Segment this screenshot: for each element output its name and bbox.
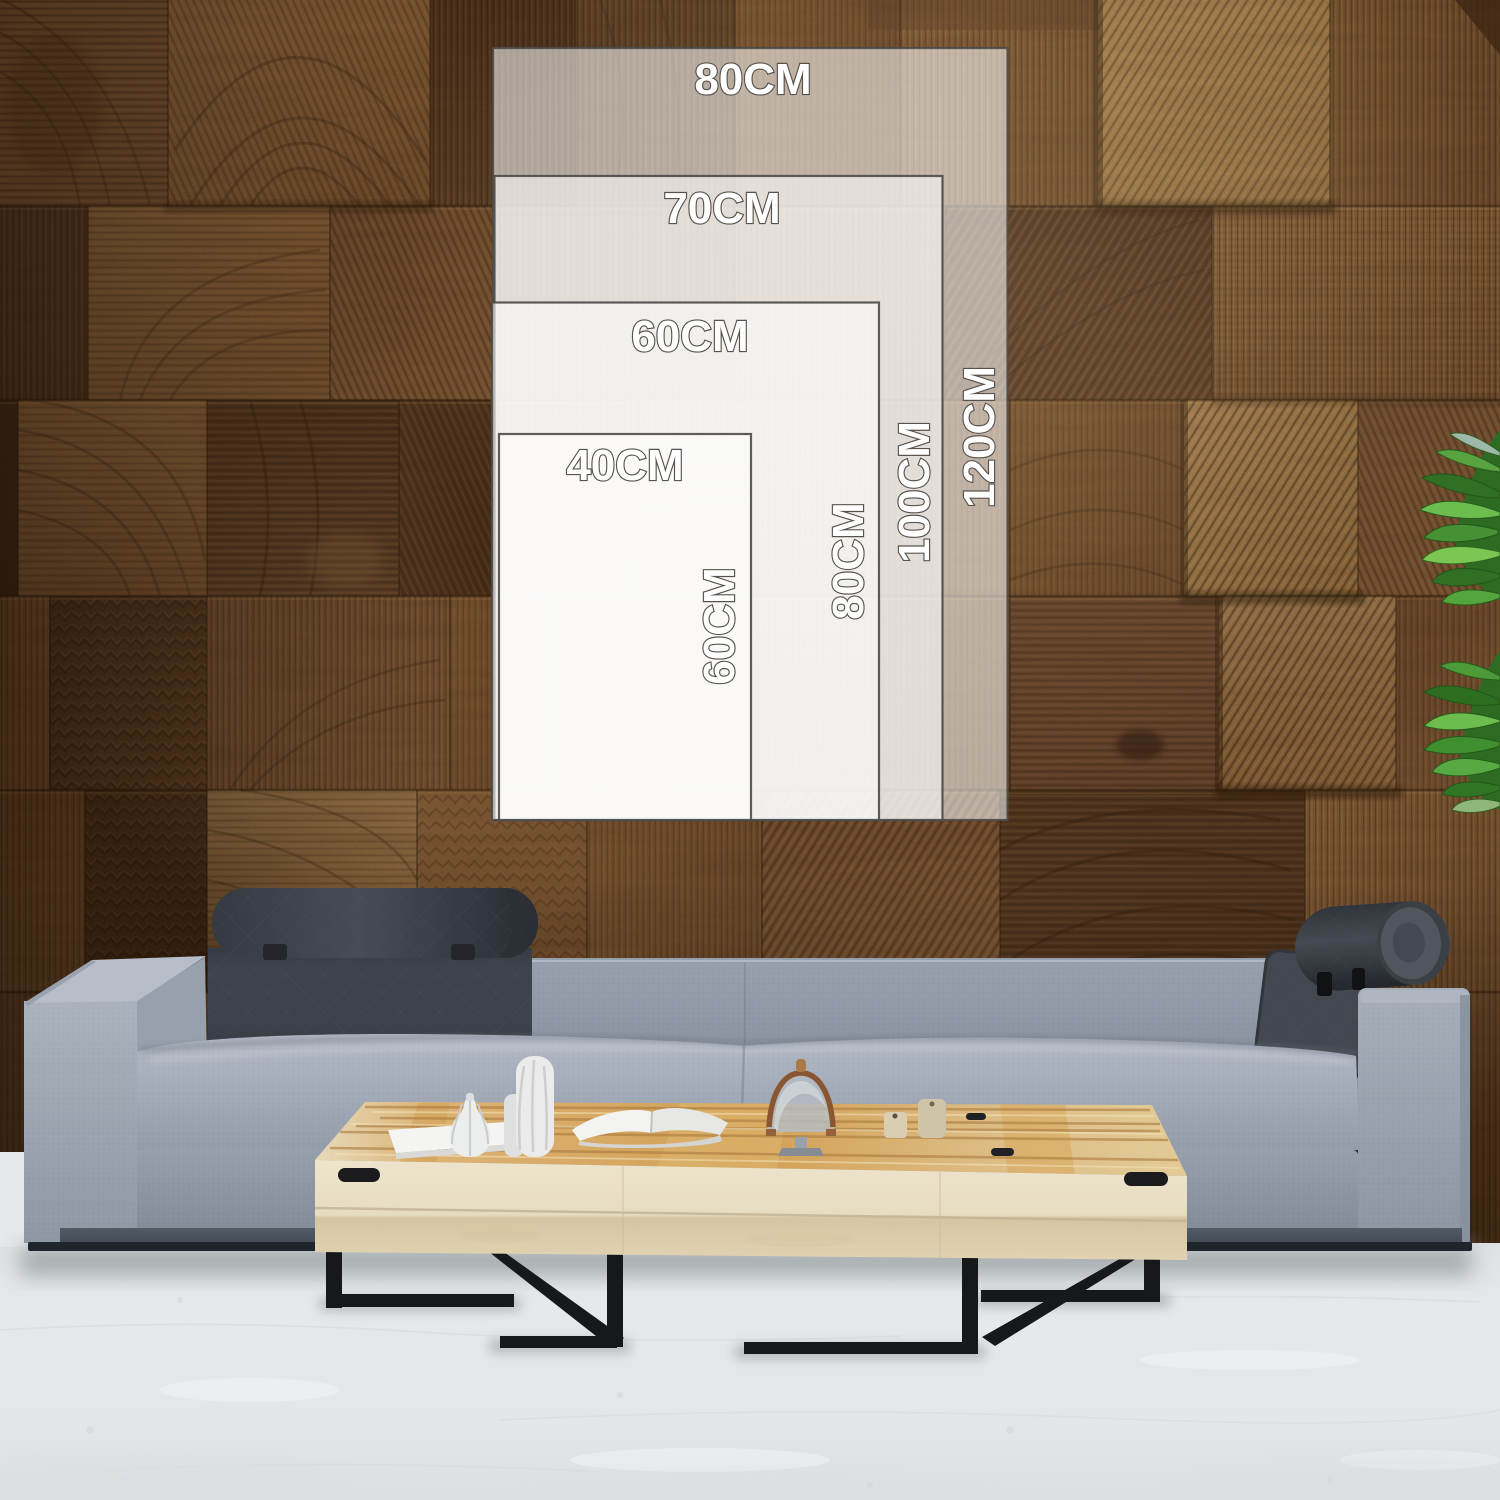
- svg-text:120CM: 120CM: [955, 366, 1004, 508]
- svg-text:100CM: 100CM: [890, 421, 939, 563]
- svg-text:80CM: 80CM: [694, 55, 811, 104]
- svg-text:70CM: 70CM: [663, 184, 780, 233]
- svg-text:60CM: 60CM: [631, 312, 748, 361]
- svg-text:60CM: 60CM: [695, 567, 744, 684]
- svg-text:40CM: 40CM: [566, 441, 683, 490]
- svg-text:80CM: 80CM: [824, 502, 873, 619]
